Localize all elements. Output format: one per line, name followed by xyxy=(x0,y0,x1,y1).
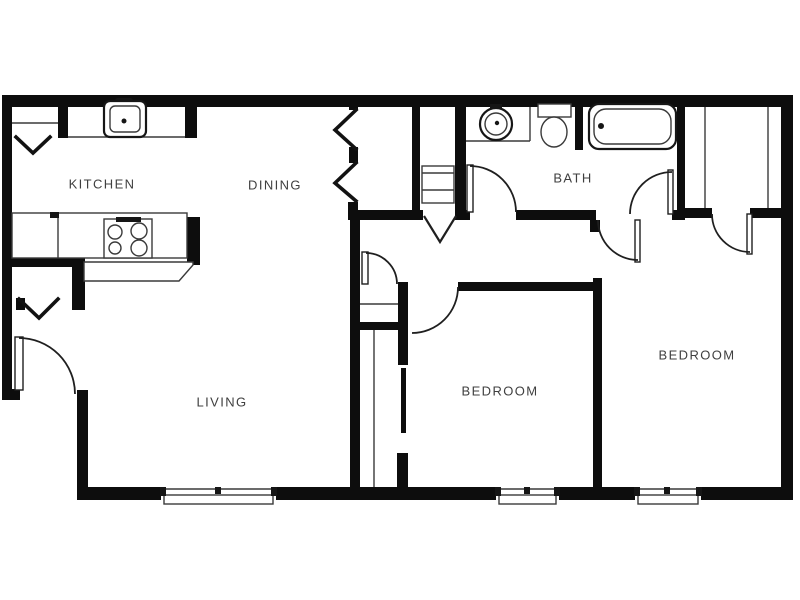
pantry-bifold-door xyxy=(16,137,50,153)
wardrobe-door-leaf xyxy=(747,214,752,254)
wall-living-west xyxy=(77,390,88,497)
bath-second-door-arc xyxy=(630,172,672,214)
corridor-door-leaf xyxy=(362,252,368,284)
entry-door-arc xyxy=(19,338,75,394)
window-bm-mullion xyxy=(524,487,530,494)
bath-vanity-sink xyxy=(466,104,530,141)
water-heater xyxy=(422,166,454,203)
counter-bar-overhang xyxy=(84,262,193,281)
wall-closet-west xyxy=(677,98,685,215)
utility-closet-door xyxy=(424,216,456,242)
window-living-sill xyxy=(164,495,273,504)
window-living-cap-left xyxy=(160,487,166,496)
wardrobe-door-arc xyxy=(712,214,750,252)
window-br-cap-right xyxy=(696,487,702,496)
wardrobe-closet-door xyxy=(712,214,752,254)
room-label-dining: DINING xyxy=(248,178,302,193)
wall-bottom-2 xyxy=(276,487,496,500)
entry-door xyxy=(15,337,75,394)
window-living-cap-right xyxy=(271,487,277,496)
counter-outline xyxy=(12,213,187,258)
wall-living-east xyxy=(350,210,360,497)
bath-second-door xyxy=(630,170,673,214)
window-br-mullion xyxy=(664,487,670,494)
floorplan-canvas: KITCHEN DINING BATH LIVING BEDROOM BEDRO… xyxy=(0,0,800,600)
kitchen-sink xyxy=(104,99,146,137)
wall-corridor-stub xyxy=(397,453,408,487)
room-label-bedroom-right: BEDROOM xyxy=(659,348,736,363)
window-bedroom-right xyxy=(634,487,702,504)
bathtub xyxy=(589,104,676,149)
stove-cooktop xyxy=(104,217,152,258)
window-bm-cap-right xyxy=(554,487,560,496)
bath-door-leaf xyxy=(467,165,473,212)
wall-bottom-4 xyxy=(701,487,793,500)
window-br-sill xyxy=(638,495,698,504)
wall-pantry xyxy=(58,98,68,138)
wall-kitchen-stub-bottom xyxy=(187,217,200,265)
toilet-tank xyxy=(538,104,571,117)
bedroom-middle-door-arc xyxy=(412,287,458,333)
wall-left xyxy=(2,95,12,400)
wall-bath-west xyxy=(455,98,466,210)
kitchen-counters xyxy=(12,212,193,281)
bath-door-arc xyxy=(470,166,516,212)
hall-closet-corridor xyxy=(360,252,398,487)
water-heater-box xyxy=(422,166,454,203)
bath-fixtures xyxy=(466,104,676,149)
window-living xyxy=(160,487,277,504)
walls-layer xyxy=(2,95,793,500)
wall-corridor-shelf-bar xyxy=(358,322,408,330)
wall-bath-south-b xyxy=(516,210,596,220)
wall-kitchen-stub-top xyxy=(185,98,197,138)
counter-end-cap xyxy=(50,212,59,218)
wall-bedroom-divider xyxy=(593,278,602,497)
toilet-bowl xyxy=(541,117,567,147)
wall-closet-south-a xyxy=(685,208,712,218)
dining-bifold-lower xyxy=(335,163,356,201)
floorplan-drawing xyxy=(0,0,800,600)
bath-sink-drain xyxy=(495,121,499,125)
room-label-bedroom-middle: BEDROOM xyxy=(462,384,539,399)
room-label-living: LIVING xyxy=(196,395,247,410)
bedroom-right-door-leaf xyxy=(635,220,640,262)
room-label-kitchen: KITCHEN xyxy=(69,177,136,192)
window-br-cap-left xyxy=(634,487,640,496)
wall-bath-tub-stub xyxy=(575,95,583,150)
toilet xyxy=(538,104,571,147)
wardrobe-closet xyxy=(705,107,768,208)
room-label-bath: BATH xyxy=(553,171,592,186)
wall-coat-closet xyxy=(72,258,85,310)
corridor-door-arc xyxy=(366,253,397,284)
window-living-mullion xyxy=(215,487,221,494)
window-bm-sill xyxy=(499,495,556,504)
bath-door xyxy=(467,165,516,212)
entry-door-leaf xyxy=(15,337,23,390)
wall-hall-closet-divider xyxy=(412,98,420,220)
wall-closet-south-b xyxy=(750,208,781,218)
dining-bifold-upper xyxy=(335,110,356,149)
bedroom-right-door xyxy=(598,220,640,262)
wall-corridor-panel xyxy=(401,368,406,433)
stove-control-bar xyxy=(116,217,141,222)
window-bedroom-middle xyxy=(495,487,560,504)
bath-second-door-leaf xyxy=(668,170,673,214)
wall-bedroom-mid-north xyxy=(458,282,602,291)
kitchen-sink-drain xyxy=(122,119,127,124)
wall-right xyxy=(781,95,793,500)
wall-bottom-1 xyxy=(77,487,161,500)
window-bm-cap-left xyxy=(495,487,501,496)
bedroom-right-door-arc xyxy=(598,220,638,260)
bathtub-drain xyxy=(598,123,604,129)
